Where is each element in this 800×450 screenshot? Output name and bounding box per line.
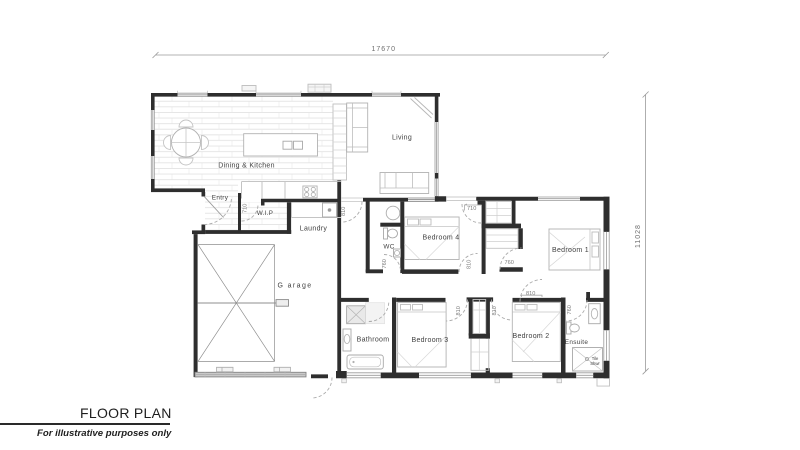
svg-text:Bathroom: Bathroom: [357, 337, 390, 344]
svg-text:710: 710: [467, 206, 476, 212]
svg-text:Bedroom 1: Bedroom 1: [552, 247, 589, 254]
svg-text:810: 810: [467, 260, 473, 269]
svg-text:810: 810: [341, 207, 347, 216]
svg-text:710: 710: [243, 204, 249, 213]
svg-text:Dining & Kitchen: Dining & Kitchen: [218, 163, 275, 170]
svg-text:Bedroom 2: Bedroom 2: [513, 333, 550, 340]
svg-text:Ensuite: Ensuite: [565, 339, 589, 346]
svg-text:W.I.P: W.I.P: [257, 210, 273, 217]
svg-text:760: 760: [505, 260, 514, 266]
svg-text:810: 810: [456, 306, 462, 315]
svg-text:810: 810: [526, 291, 535, 297]
svg-text:11028: 11028: [635, 224, 642, 248]
svg-text:WC: WC: [383, 244, 394, 251]
svg-text:Bedroom 3: Bedroom 3: [412, 337, 449, 344]
svg-text:Shwr: Shwr: [590, 361, 600, 366]
svg-text:760: 760: [567, 305, 573, 314]
svg-text:760: 760: [382, 259, 388, 268]
svg-text:Bedroom 4: Bedroom 4: [423, 235, 460, 242]
svg-text:Entry: Entry: [212, 195, 229, 202]
svg-text:Laundry: Laundry: [300, 226, 328, 233]
svg-text:G arage: G arage: [277, 283, 312, 290]
svg-text:Living: Living: [392, 135, 412, 142]
svg-text:17670: 17670: [372, 46, 396, 53]
